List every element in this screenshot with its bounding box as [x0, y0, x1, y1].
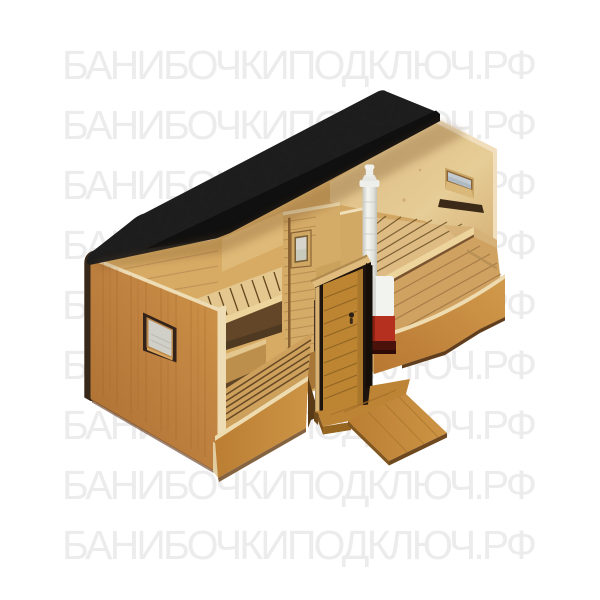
- svg-text:БАНИБОЧКИПОДКЛЮЧ.РФ: БАНИБОЧКИПОДКЛЮЧ.РФ: [62, 42, 535, 88]
- svg-text:БАНИБОЧКИПОДКЛЮЧ.РФ: БАНИБОЧКИПОДКЛЮЧ.РФ: [62, 522, 535, 568]
- svg-text:БАНИБОЧКИПОДКЛЮЧ.РФ: БАНИБОЧКИПОДКЛЮЧ.РФ: [62, 462, 535, 508]
